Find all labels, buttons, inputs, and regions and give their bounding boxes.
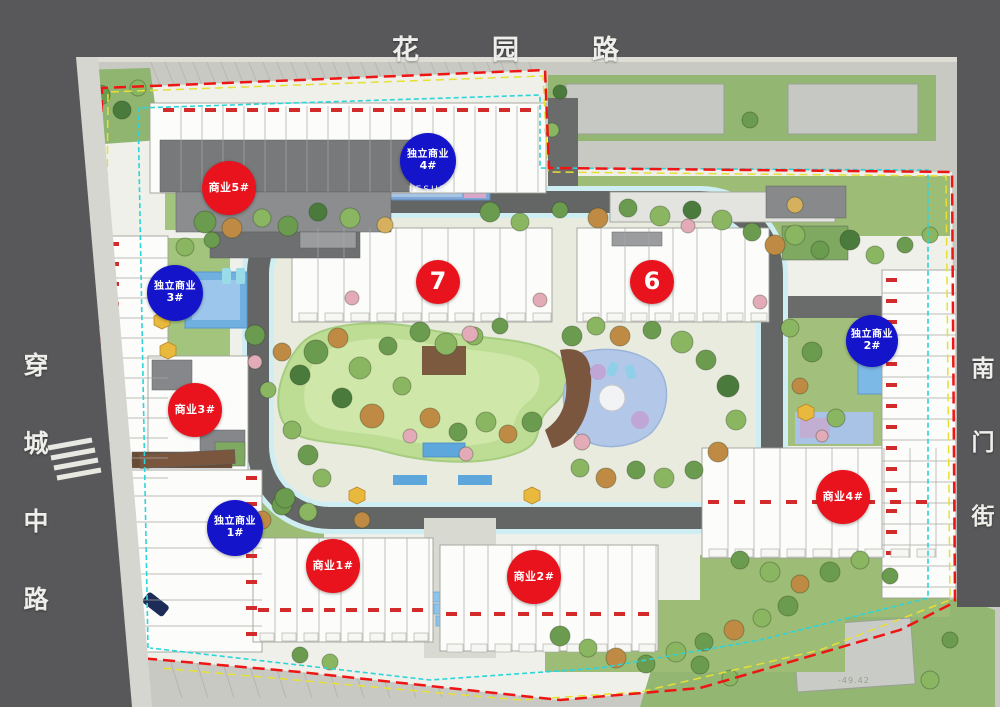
badge-label: 商业1# (313, 560, 354, 573)
road-label-top: 花园路 (392, 28, 692, 67)
badge-dulishangye-2: 独立商业 2# (846, 315, 898, 367)
badge-number: 4# (420, 160, 437, 173)
badge-label: 商业3# (175, 404, 216, 417)
badge-shangye-3: 商业3# (168, 383, 222, 437)
badge-number: 2# (864, 340, 881, 353)
building-number: 7 (430, 268, 447, 296)
badge-building-6: 6 (630, 260, 674, 304)
road-label-left: 穿城中路 (16, 352, 52, 664)
badge-label: 商业4# (823, 491, 864, 504)
play-sphere (599, 385, 625, 411)
badge-number: 3# (167, 292, 184, 305)
building-number: 6 (644, 268, 661, 296)
elevation-note: -49.42 (838, 676, 870, 685)
badge-dulishangye-3: 独立商业 3# (147, 265, 203, 321)
lap-pool-label: LESUE (366, 180, 490, 200)
badge-shangye-5: 商业5# (202, 161, 256, 215)
road-label-right: 南门街 (963, 356, 997, 578)
badge-number: 1# (227, 527, 244, 540)
badge-dulishangye-1: 独立商业 1# (207, 500, 263, 556)
building-dulishangye-1 (130, 470, 262, 652)
badge-shangye-2: 商业2# (507, 550, 561, 604)
badge-label: 商业5# (209, 182, 250, 195)
badge-label: 商业2# (514, 571, 555, 584)
badge-shangye-1: 商业1# (306, 539, 360, 593)
badge-building-7: 7 (416, 260, 460, 304)
site-plan: 花园路 穿城中路 南门街 商业5# 商业3# 商业1# 商业2# 商业4# 独立… (0, 0, 1000, 707)
badge-shangye-4: 商业4# (816, 470, 870, 524)
